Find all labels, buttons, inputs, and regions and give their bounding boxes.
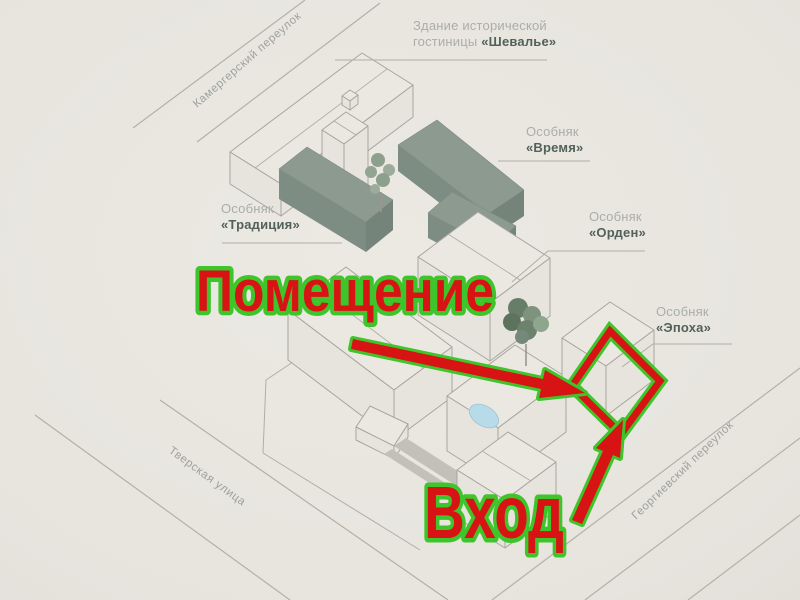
label-vremya: Особняк «Время» [526,124,583,156]
big-tree-foliage [533,316,549,332]
small-tree-foliage [371,153,385,167]
label-orden-name: «Орден» [589,225,646,240]
label-chevalier-line2: гостиницы [413,34,481,49]
label-chevalier: Здание исторической гостиницы «Шевалье» [413,18,556,50]
small-tree-foliage [370,184,380,194]
label-epoha-name: «Эпоха» [656,320,711,335]
kamergersky-street-line-1 [133,0,305,128]
small-tree-foliage [376,173,390,187]
plot-boundary-line [263,356,302,453]
georgievsky-street-line-3 [688,515,800,600]
label-vremya-line1: Особняк [526,124,579,139]
tverskaya-street-line-1 [35,415,290,600]
street-label-kamergersky: Камергерский переулок [191,10,304,110]
entrance-arrow [572,420,623,524]
label-orden: Особняк «Орден» [589,209,646,241]
label-traditsiya-name: «Традиция» [221,217,300,232]
street-label-tverskaya: Тверская улица [166,445,248,509]
isometric-scene: Камергерский переулок Тверская улица Гео… [0,0,800,600]
label-chevalier-name: «Шевалье» [481,34,556,49]
plot-boundary-bottom-line [263,453,420,550]
label-vremya-name: «Время» [526,140,583,155]
label-traditsiya: Особняк «Традиция» [221,201,300,233]
big-tree-foliage [515,330,529,344]
label-traditsiya-line1: Особняк [221,201,274,216]
premises-label: Помещение [196,259,494,324]
street-label-georgievsky: Георгиевский переулок [630,419,737,522]
label-chevalier-line1: Здание исторической [413,18,547,33]
small-tree-foliage [365,166,377,178]
label-orden-line1: Особняк [589,209,642,224]
label-epoha-line1: Особняк [656,304,709,319]
location-map: Камергерский переулок Тверская улица Гео… [0,0,800,600]
label-epoha: Особняк «Эпоха» [656,304,711,336]
entrance-label: Вход [424,471,564,554]
